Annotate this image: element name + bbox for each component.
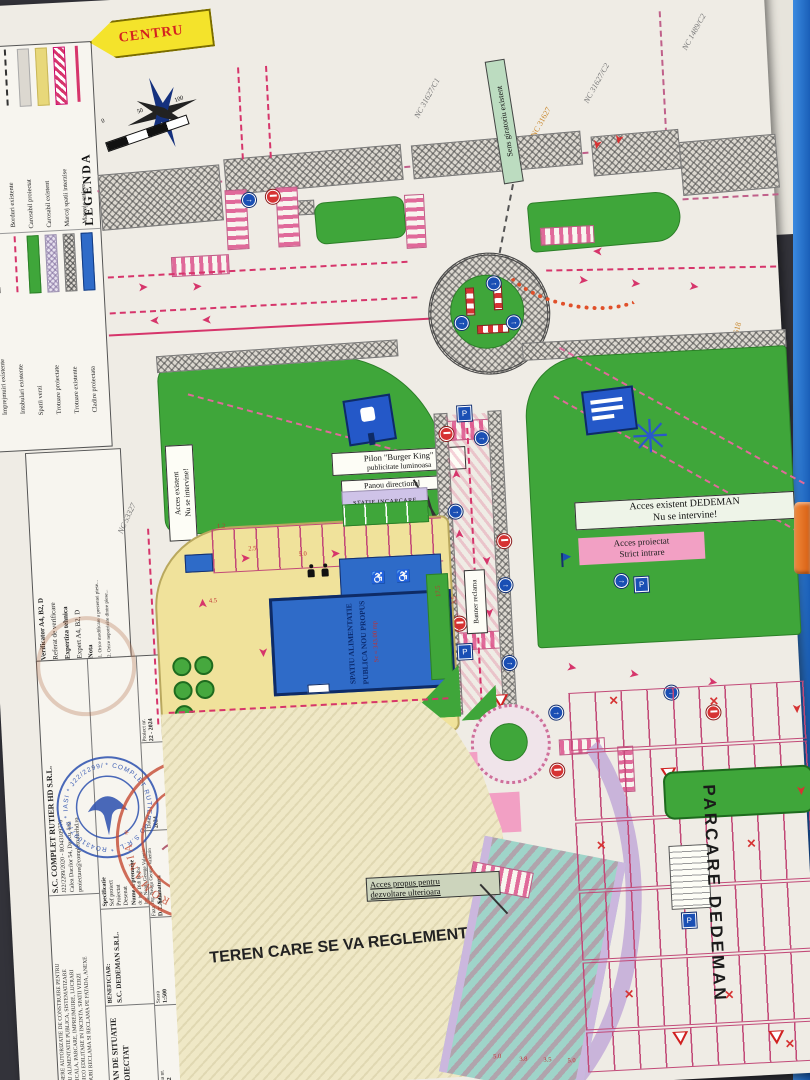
closed-stall-x xyxy=(608,694,619,707)
dedeman-parking-row xyxy=(568,681,807,751)
totem-stripe xyxy=(591,405,623,413)
legend-label: Trotuare proiectate xyxy=(50,294,63,414)
dimension: 2.5 xyxy=(248,545,256,552)
dimension: 3.5 xyxy=(451,596,458,604)
parking-green-median xyxy=(663,764,810,820)
legend-symbol-intabulari xyxy=(13,236,18,292)
totem-stripe xyxy=(590,397,622,405)
lane-arrow xyxy=(689,281,699,293)
legend-label: Marcaj spatii interzise xyxy=(58,107,71,227)
family-parking-icon xyxy=(321,563,329,576)
legend-symbol-trotuare-proiectate xyxy=(44,234,59,293)
lane-arrow xyxy=(590,139,603,150)
roundabout-candy-beam xyxy=(477,324,509,335)
lane-arrow xyxy=(480,556,491,566)
cadastral-label: NC 31627/C1 xyxy=(412,77,441,120)
plan-sheet: LEGENDA Borduri proiectate Borduri exist… xyxy=(0,0,810,1080)
wheelchair-icon xyxy=(396,570,412,583)
scale-tick: 0 xyxy=(101,118,106,125)
lane-arrow xyxy=(628,669,639,682)
dimension: 4.5 xyxy=(209,597,217,604)
dimension: 5.0 xyxy=(298,550,306,557)
lane-arrow xyxy=(795,786,806,796)
drive-arrow xyxy=(198,599,209,609)
pylon-base xyxy=(368,433,376,446)
acces-existent-label: Acces existent Nu se intervine! xyxy=(165,444,198,541)
drive-arrow xyxy=(241,553,251,564)
sidewalk-hatch xyxy=(679,134,780,196)
closed-stall-x xyxy=(785,1038,796,1051)
legend-symbol-marcaj-interzis xyxy=(52,46,67,105)
drive-arrow xyxy=(330,549,340,560)
legend-panel: LEGENDA Borduri proiectate Borduri exist… xyxy=(0,41,113,453)
legend-symbol-marcaje-rutiere xyxy=(75,46,81,102)
lane-arrow xyxy=(612,133,625,144)
banner-reclama-text: Banner reclama xyxy=(470,572,482,632)
lane-line xyxy=(265,66,272,158)
centru-label: CENTRU xyxy=(118,23,185,47)
building-line1: SPATIU ALIMENTATIE xyxy=(344,603,357,684)
legend-area-items: Imprejmuiri existente Intabulari existen… xyxy=(0,229,110,421)
totem-stripe xyxy=(592,414,614,421)
median-green-island xyxy=(314,195,407,245)
closed-stall-x xyxy=(746,837,757,850)
closed-stall-x xyxy=(709,695,720,708)
legend-symbol-trotuare-existente xyxy=(62,233,77,292)
legend-label: Carosabil proiectat xyxy=(22,108,35,228)
building-line3: Sc = 343.00 mp xyxy=(371,621,380,663)
lane-arrow xyxy=(455,529,466,539)
legend-symbol-cladire-proiectata xyxy=(80,232,95,291)
lane-arrow xyxy=(790,704,801,714)
legend-label: Borduri existente xyxy=(4,107,17,227)
dimension: 1.2 xyxy=(217,523,225,530)
cadastral-label: NC 1489/C2 xyxy=(680,12,707,52)
dimension: 3.5 xyxy=(543,1056,551,1063)
project-title: OBTINERE AUTORIZATIE DE CONSTRUIRE PENTR… xyxy=(49,894,109,1080)
legend-symbol-carosabil-existent xyxy=(34,47,49,106)
legend-symbol-spatii-verzi xyxy=(26,235,41,294)
lane-line xyxy=(108,261,408,279)
sidewalk-hatch xyxy=(98,164,224,230)
sidewalk-hatch xyxy=(223,144,403,195)
parking-sign xyxy=(682,913,697,929)
no-entry-sign xyxy=(497,534,512,549)
dimension: 6.0 xyxy=(455,624,462,632)
roundabout-candy-pole xyxy=(465,287,475,315)
legend-label: Spatii verzi xyxy=(32,295,45,415)
legend-symbol-carosabil-proiectat xyxy=(16,48,31,107)
legend-label: Intabulari existente xyxy=(14,294,27,414)
closed-stall-x xyxy=(596,839,607,852)
sheet-title-2: PROIECTAT xyxy=(119,1007,132,1080)
building-entrance xyxy=(307,683,329,693)
ev-charging-stalls xyxy=(342,500,429,526)
parking-sign xyxy=(634,577,649,593)
yield-sign xyxy=(672,1031,689,1046)
sidewalk-hatch xyxy=(590,129,681,177)
dedeman-totem xyxy=(581,385,638,435)
sheet-title-cell: PLAN DE SITUATIE PROIECTAT xyxy=(106,1004,159,1080)
crosswalk xyxy=(404,194,427,249)
lane-arrow xyxy=(202,313,212,324)
legend-label: Cladire proiectata xyxy=(86,292,99,412)
legend-label: Imprejmuiri existente xyxy=(0,295,9,415)
dimension: 5.0 xyxy=(567,1057,575,1064)
lane-line xyxy=(110,296,418,314)
beneficiar-cell: BENEFICIAR: S.C. DEDEMAN S.R.L. xyxy=(101,907,154,1006)
dimension: 5.0 xyxy=(493,1053,501,1060)
dedeman-parking-row xyxy=(582,950,810,1030)
info-sign xyxy=(458,644,473,660)
centru-direction-arrow: CENTRU xyxy=(87,8,215,61)
lane-arrow xyxy=(150,314,160,325)
banner-reclama-label: Banner reclama xyxy=(464,569,488,634)
dimension: 17.5 xyxy=(435,585,443,597)
legend-label: Trotuare existente xyxy=(68,293,81,413)
legend-line-items: Borduri proiectate Borduri existente Car… xyxy=(0,42,100,235)
compass-rose xyxy=(115,65,211,161)
burger-king-pylon xyxy=(342,394,397,447)
closed-stall-x xyxy=(624,988,635,1001)
legend-symbol-borduri-existente xyxy=(3,50,8,106)
cadastral-label: NC 31627/C2 xyxy=(582,62,611,105)
mandatory-direction-sign xyxy=(242,193,257,208)
yield-sign xyxy=(768,1030,785,1045)
dimension: 3.8 xyxy=(519,1056,527,1063)
photo-frame: LEGENDA Borduri proiectate Borduri exist… xyxy=(0,0,810,1080)
wheelchair-icon xyxy=(371,571,387,584)
lane-line xyxy=(237,67,244,159)
binder-clip xyxy=(794,502,810,574)
drive-arrow xyxy=(257,648,268,658)
lane-arrow xyxy=(566,662,577,675)
lane-arrow xyxy=(452,469,463,479)
family-parking-icon xyxy=(307,564,315,577)
building-line2: PUBLICA NOU PROPUS xyxy=(357,601,370,685)
lane-arrow xyxy=(192,282,202,293)
blue-utility-box xyxy=(184,553,213,572)
plan-canvas: LEGENDA Borduri proiectate Borduri exist… xyxy=(0,0,810,1080)
legend-label: Carosabil existent xyxy=(40,107,53,227)
sens-giratoriu-text: Sens giratoriu existent xyxy=(494,86,514,158)
survey-flag-icon xyxy=(561,553,564,567)
parking-sign xyxy=(457,406,472,422)
pylon-logo xyxy=(360,406,376,422)
lane-arrow xyxy=(138,282,148,293)
